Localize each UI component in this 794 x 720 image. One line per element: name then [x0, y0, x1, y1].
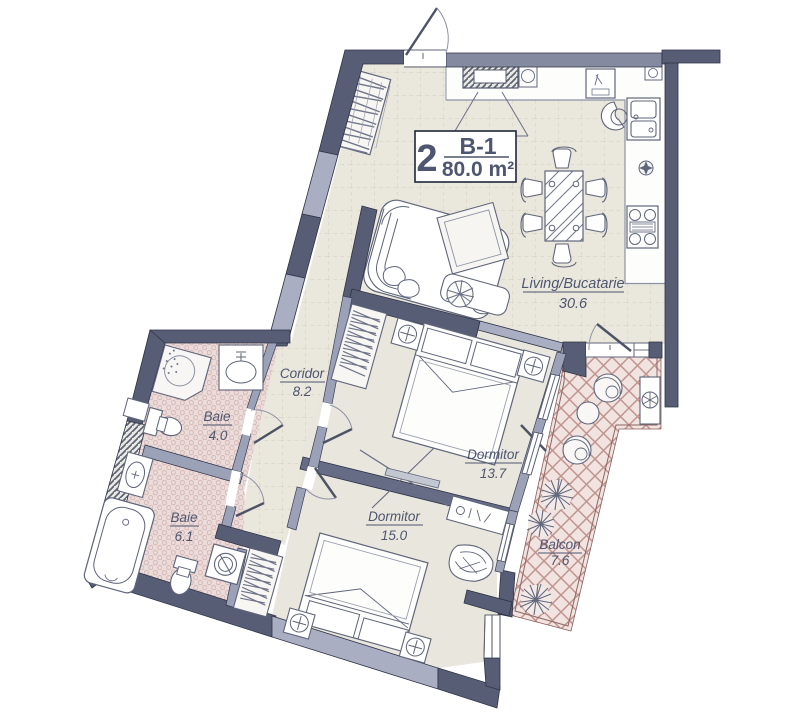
svg-text:Dormitor: Dormitor [467, 447, 519, 462]
svg-text:30.6: 30.6 [559, 296, 588, 312]
svg-text:13.7: 13.7 [480, 466, 507, 481]
svg-text:Baie: Baie [170, 510, 197, 525]
svg-text:7.6: 7.6 [551, 553, 570, 568]
svg-text:2: 2 [416, 138, 437, 180]
svg-text:Balcon: Balcon [539, 537, 580, 552]
svg-text:4.0: 4.0 [209, 428, 228, 443]
svg-text:Baie: Baie [203, 409, 230, 424]
svg-text:Coridor: Coridor [280, 366, 325, 381]
svg-text:Dormitor: Dormitor [368, 509, 420, 524]
svg-text:B-1: B-1 [459, 133, 496, 159]
svg-text:Living/Bucatarie: Living/Bucatarie [521, 276, 624, 292]
svg-text:8.2: 8.2 [293, 384, 312, 399]
svg-text:15.0: 15.0 [381, 528, 408, 543]
svg-text:80.0 m²: 80.0 m² [442, 158, 514, 181]
svg-text:6.1: 6.1 [175, 529, 194, 544]
